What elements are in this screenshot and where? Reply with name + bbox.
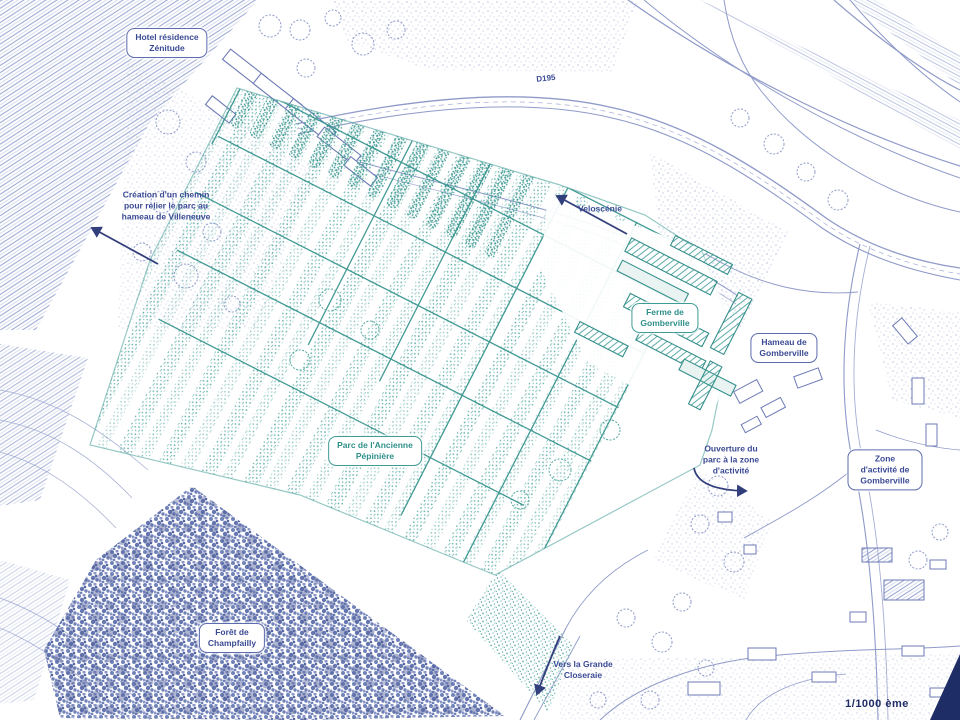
site-plan-map: Hotel résidence Zénitude Création d'un c… (0, 0, 960, 720)
label-zone-activite: Zone d'activité de Gomberville (848, 449, 923, 490)
label-ouverture-parc: Ouverture du parc à la zone d'activité (703, 443, 759, 476)
map-artwork (0, 0, 960, 720)
label-ferme-gomberville: Ferme de Gomberville (631, 303, 698, 333)
label-parc-ancienne-pepiniere: Parc de l'Ancienne Pépinière (328, 436, 422, 466)
scale-label: 1/1000 ème (845, 697, 909, 711)
label-creation-chemin: Création d'un chemin pour relier le parc… (122, 189, 211, 222)
label-veloscenie: Veloscénie (578, 203, 622, 214)
label-hameau-gomberville: Hameau de Gomberville (750, 333, 817, 363)
label-foret-champfailly: Forêt de Champfailly (199, 623, 265, 653)
label-vers-grande-closeraie: Vers la Grande Closeraie (553, 659, 613, 681)
label-hotel-zenitude: Hotel résidence Zénitude (126, 28, 207, 58)
